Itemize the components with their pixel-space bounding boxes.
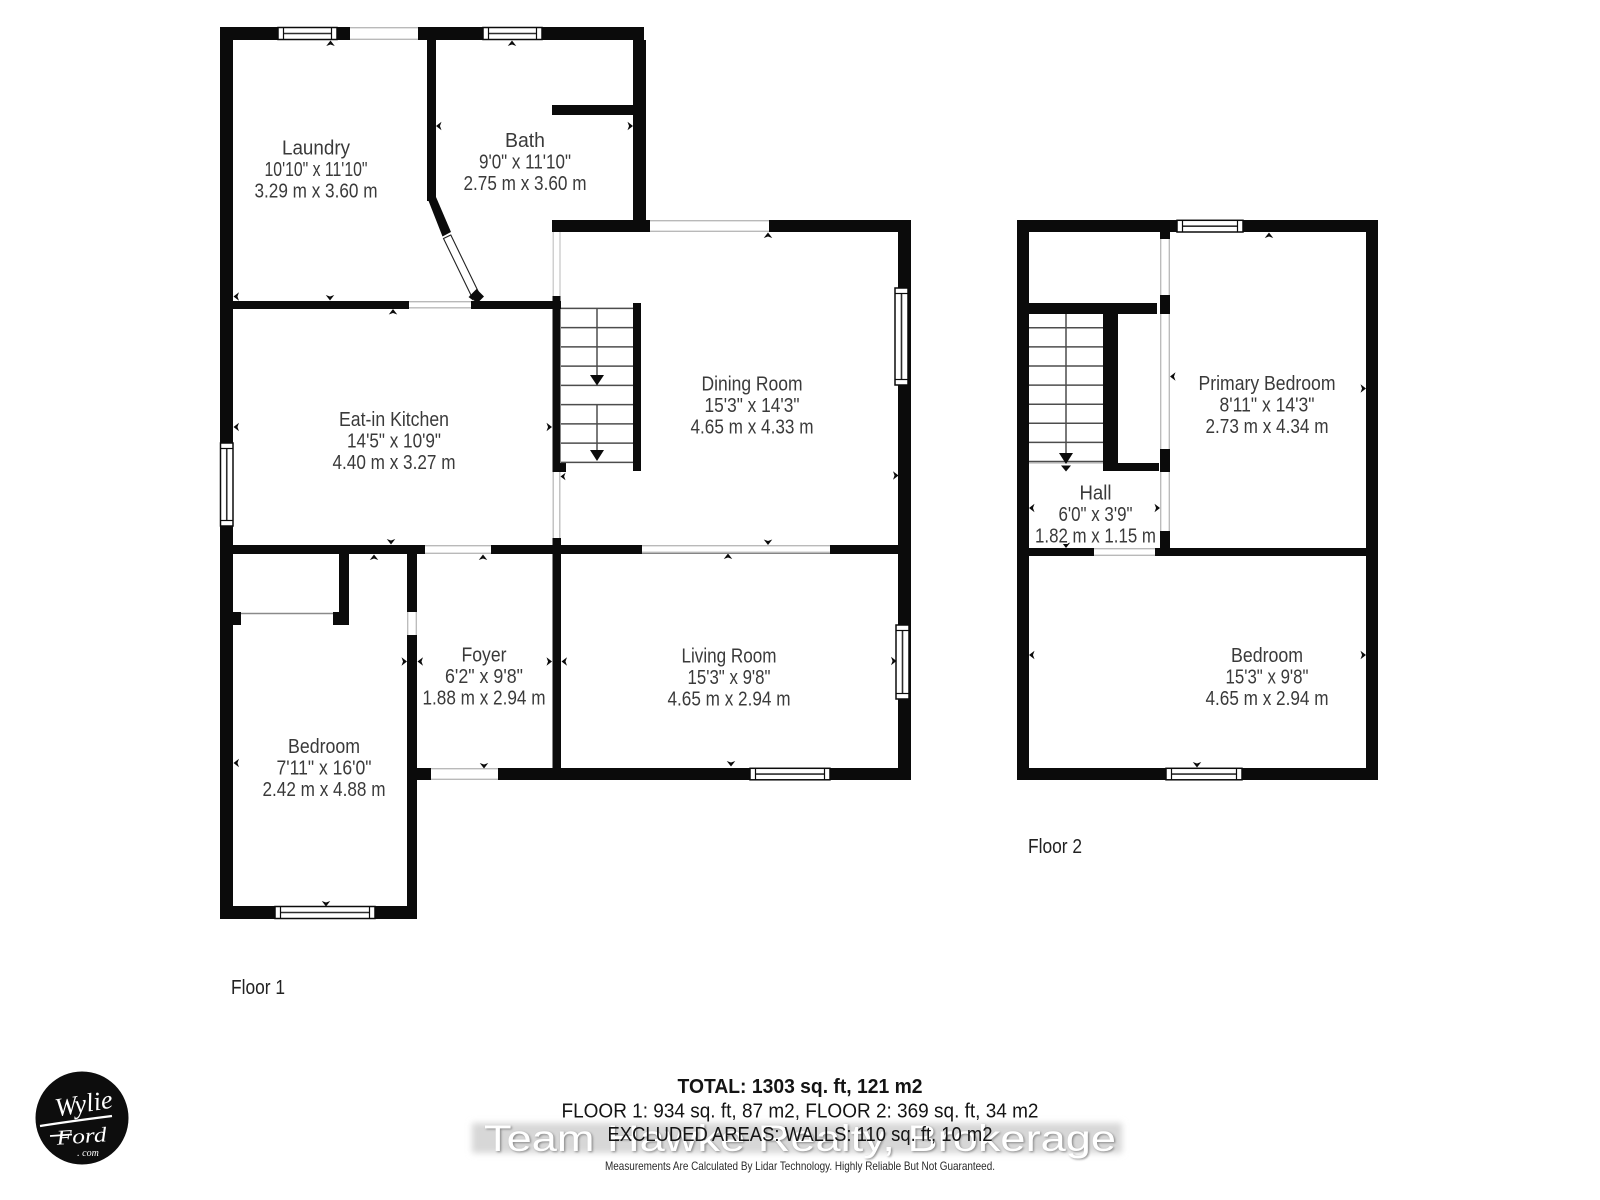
svg-text:4.65 m x 2.94 m: 4.65 m x 2.94 m (1206, 688, 1329, 710)
svg-text:Floor 1: Floor 1 (231, 977, 285, 999)
svg-text:2.73 m x 4.34 m: 2.73 m x 4.34 m (1206, 416, 1329, 438)
svg-text:9'0" x 11'10": 9'0" x 11'10" (479, 152, 571, 174)
svg-text:Hall: Hall (1080, 483, 1112, 505)
svg-text:Bedroom: Bedroom (288, 736, 360, 758)
svg-text:Dining Room: Dining Room (702, 374, 803, 396)
svg-text:4.40 m x 3.27 m: 4.40 m x 3.27 m (333, 452, 456, 474)
svg-text:Primary Bedroom: Primary Bedroom (1199, 373, 1336, 395)
svg-text:3.29 m x 3.60 m: 3.29 m x 3.60 m (255, 181, 378, 203)
svg-text:15'3" x 14'3": 15'3" x 14'3" (705, 395, 800, 417)
svg-text:TOTAL: 1303 sq. ft, 121 m2: TOTAL: 1303 sq. ft, 121 m2 (678, 1076, 923, 1098)
svg-text:Measurements Are Calculated By: Measurements Are Calculated By Lidar Tec… (605, 1159, 995, 1173)
svg-text:15'3" x 9'8": 15'3" x 9'8" (688, 667, 771, 689)
svg-text:6'0" x 3'9": 6'0" x 3'9" (1059, 504, 1133, 526)
svg-text:7'11" x 16'0": 7'11" x 16'0" (277, 758, 372, 780)
svg-text:Laundry: Laundry (282, 138, 350, 160)
svg-text:10'10" x 11'10": 10'10" x 11'10" (265, 159, 368, 181)
svg-text:EXCLUDED AREAS: WALLS: 110 sq.: EXCLUDED AREAS: WALLS: 110 sq. ft, 10 m2 (608, 1124, 993, 1146)
svg-text:2.75 m x 3.60 m: 2.75 m x 3.60 m (464, 173, 587, 195)
svg-text:FLOOR 1: 934 sq. ft, 87 m2, FL: FLOOR 1: 934 sq. ft, 87 m2, FLOOR 2: 369… (562, 1101, 1039, 1123)
svg-text:14'5" x 10'9": 14'5" x 10'9" (347, 431, 441, 453)
svg-text:15'3" x 9'8": 15'3" x 9'8" (1226, 667, 1309, 689)
svg-text:Living Room: Living Room (682, 646, 777, 668)
svg-text:1.82 m x 1.15 m: 1.82 m x 1.15 m (1035, 526, 1156, 548)
svg-text:Floor 2: Floor 2 (1028, 836, 1082, 858)
svg-text:4.65 m x 2.94 m: 4.65 m x 2.94 m (668, 689, 791, 711)
svg-text:2.42 m x 4.88 m: 2.42 m x 4.88 m (263, 779, 386, 801)
svg-text:. com: . com (77, 1148, 99, 1159)
svg-text:4.65 m x 4.33 m: 4.65 m x 4.33 m (691, 417, 814, 439)
svg-text:Bedroom: Bedroom (1231, 645, 1303, 667)
svg-text:Bath: Bath (505, 130, 545, 152)
svg-text:6'2" x 9'8": 6'2" x 9'8" (445, 666, 523, 688)
svg-text:8'11" x 14'3": 8'11" x 14'3" (1220, 395, 1315, 417)
svg-text:Eat-in Kitchen: Eat-in Kitchen (339, 409, 449, 431)
svg-text:1.88 m x 2.94 m: 1.88 m x 2.94 m (423, 688, 546, 710)
svg-text:Foyer: Foyer (462, 645, 507, 667)
